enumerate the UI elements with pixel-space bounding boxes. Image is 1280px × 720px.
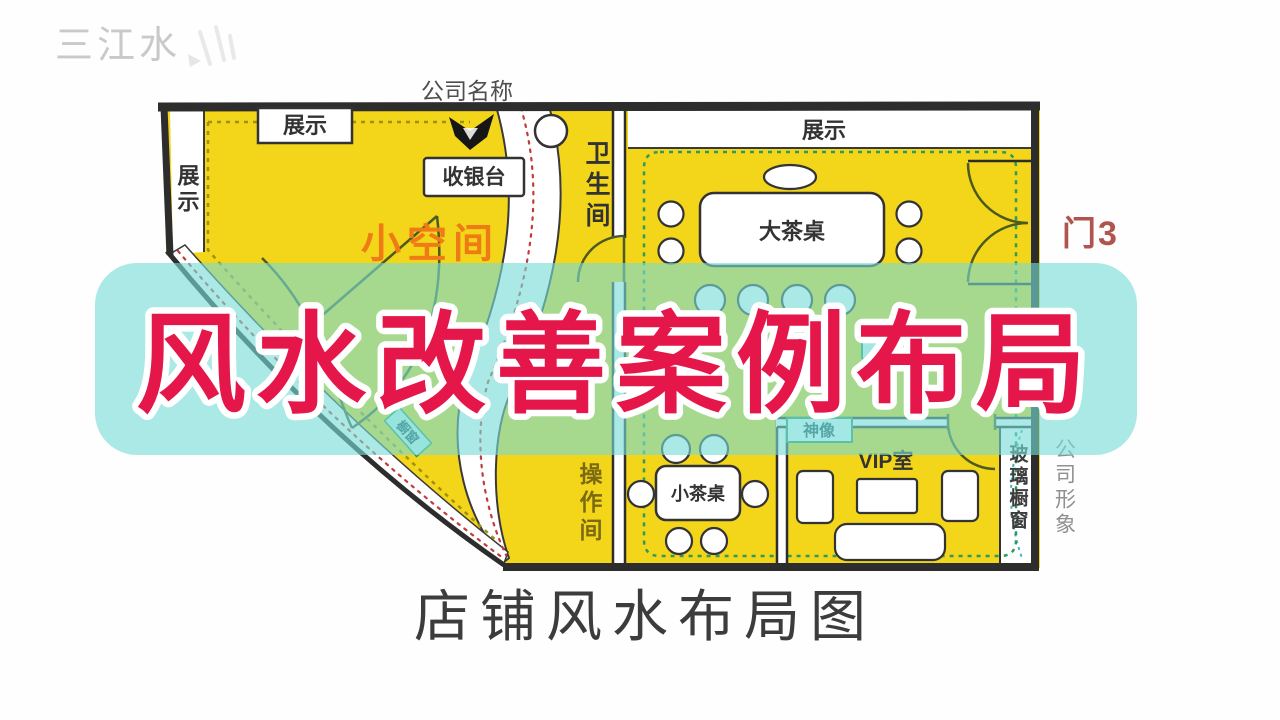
big-tea-table-label: 大茶桌 <box>759 219 826 244</box>
vip-coffee-table <box>857 479 917 513</box>
display-strip-right-label: 展示 <box>802 118 846 143</box>
title-overlay-text: 风水改善案例布局 <box>136 304 1096 427</box>
caption-text: 店铺风水布局图 <box>414 585 876 648</box>
vip-sofa-long <box>835 524 945 560</box>
chair <box>659 202 684 227</box>
chair <box>659 239 684 264</box>
chair <box>897 202 922 227</box>
small-tea-table-label: 小茶桌 <box>671 483 726 504</box>
display-strip-left-label: 展示 <box>175 164 200 216</box>
cashier-label: 收银台 <box>443 165 506 189</box>
watermark-icon <box>188 27 234 67</box>
vip-sofa-left <box>797 471 833 523</box>
watermark-text: 三江水 <box>55 25 181 67</box>
chair <box>701 528 727 554</box>
bathroom-label: 卫生间 <box>582 140 611 233</box>
display-box-label: 展示 <box>283 113 327 138</box>
vip-sofa-right <box>942 471 978 521</box>
small-space-label: 小空间 <box>361 222 499 266</box>
floor-plan-canvas: 公司名称 展示 展示 展示 收银台 卫生间 小空间 大茶桌 操作间 小茶桌 VI… <box>0 0 1280 720</box>
operation-room-label: 操作间 <box>576 462 603 546</box>
company-name-label: 公司名称 <box>421 78 513 104</box>
chair <box>742 481 768 507</box>
video-frame: 公司名称 展示 展示 展示 收银台 卫生间 小空间 大茶桌 操作间 小茶桌 VI… <box>0 0 1280 720</box>
entrance-column <box>535 115 567 147</box>
glass-window-label: 玻璃橱窗 <box>1007 443 1030 532</box>
chair <box>897 239 922 264</box>
chair <box>628 481 654 507</box>
chair <box>666 528 692 554</box>
door3-label: 门3 <box>1062 215 1119 253</box>
chair <box>764 165 816 189</box>
